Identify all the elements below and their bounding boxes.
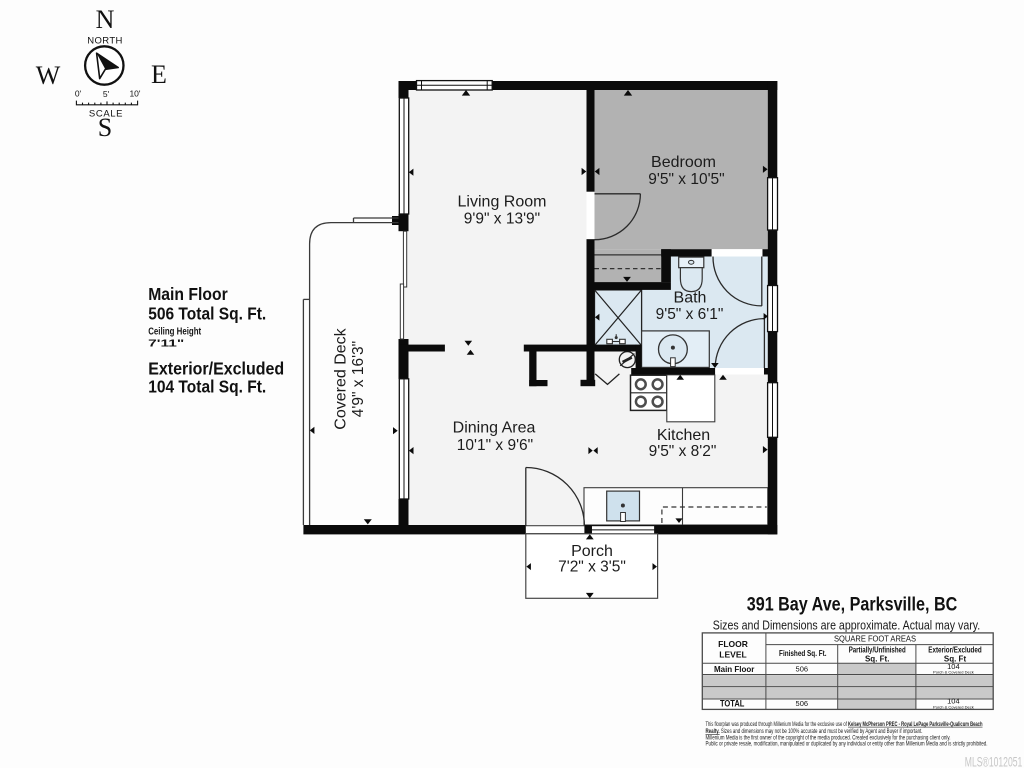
svg-text:506: 506 (796, 699, 809, 708)
svg-text:SQUARE FOOT AREAS: SQUARE FOOT AREAS (834, 634, 916, 644)
svg-text:9'9" x 13'9": 9'9" x 13'9" (464, 211, 540, 228)
svg-text:9'5" x 6'1": 9'5" x 6'1" (656, 306, 724, 323)
svg-text:Porch & Covered Deck: Porch & Covered Deck (933, 670, 974, 675)
svg-text:Sizes and Dimensions are appro: Sizes and Dimensions are approximate. Ac… (713, 618, 981, 633)
svg-text:Bedroom: Bedroom (651, 154, 716, 171)
svg-text:Main Floor: Main Floor (714, 664, 755, 674)
svg-text:Partially/Unfinished: Partially/Unfinished (849, 646, 906, 655)
svg-text:10': 10' (129, 89, 140, 99)
svg-text:Dining Area: Dining Area (453, 420, 536, 437)
svg-text:Finished Sq. Ft.: Finished Sq. Ft. (779, 649, 827, 658)
svg-text:506: 506 (796, 665, 809, 674)
svg-text:9'5" x 8'2": 9'5" x 8'2" (649, 443, 717, 460)
svg-text:W: W (36, 61, 61, 90)
svg-text:NORTH: NORTH (87, 36, 123, 47)
svg-text:S: S (98, 113, 112, 142)
svg-text:Covered Deck: Covered Deck (333, 327, 350, 429)
svg-text:104 Total Sq. Ft.: 104 Total Sq. Ft. (148, 377, 266, 397)
svg-text:TOTAL: TOTAL (720, 699, 745, 710)
svg-text:Exterior/Excluded: Exterior/Excluded (928, 646, 982, 655)
svg-text:MLS®1012051: MLS®1012051 (965, 755, 1023, 768)
svg-text:4'9" x 16'3": 4'9" x 16'3" (350, 341, 367, 417)
svg-text:10'1" x 9'6": 10'1" x 9'6" (457, 437, 533, 454)
svg-text:Ceiling Height: Ceiling Height (148, 326, 201, 338)
svg-text:FLOOR: FLOOR (718, 639, 748, 649)
svg-text:Public or private resale, modi: Public or private resale, modification, … (706, 742, 988, 748)
svg-text:Living Room: Living Room (458, 194, 547, 211)
svg-text:Sq. Ft.: Sq. Ft. (865, 655, 889, 664)
svg-text:5': 5' (103, 89, 110, 99)
svg-text:N: N (96, 5, 115, 34)
svg-text:391 Bay Ave, Parksville, BC: 391 Bay Ave, Parksville, BC (747, 595, 958, 616)
svg-text:9'5" x 10'5": 9'5" x 10'5" (648, 171, 724, 188)
svg-text:Main Floor: Main Floor (148, 284, 228, 304)
svg-text:Exterior/Excluded: Exterior/Excluded (148, 359, 284, 379)
svg-text:E: E (151, 60, 167, 89)
svg-text:Millenium Media is the first o: Millenium Media is the first owner of th… (706, 736, 951, 742)
svg-text:7'11": 7'11" (148, 338, 184, 350)
svg-text:7'2" x 3'5": 7'2" x 3'5" (558, 559, 626, 576)
svg-text:Porch & Covered Deck: Porch & Covered Deck (933, 704, 974, 709)
svg-text:Realty. Sizes and dimensions m: Realty. Sizes and dimensions may not be … (706, 729, 923, 735)
svg-text:506 Total Sq. Ft.: 506 Total Sq. Ft. (148, 304, 266, 324)
svg-text:Kitchen: Kitchen (657, 427, 710, 444)
svg-text:0': 0' (75, 89, 82, 99)
svg-text:LEVEL: LEVEL (719, 650, 746, 660)
svg-text:Bath: Bath (674, 290, 707, 307)
svg-text:Porch: Porch (571, 543, 613, 560)
svg-text:This floorplan was produced th: This floorplan was produced through Mill… (706, 722, 983, 728)
